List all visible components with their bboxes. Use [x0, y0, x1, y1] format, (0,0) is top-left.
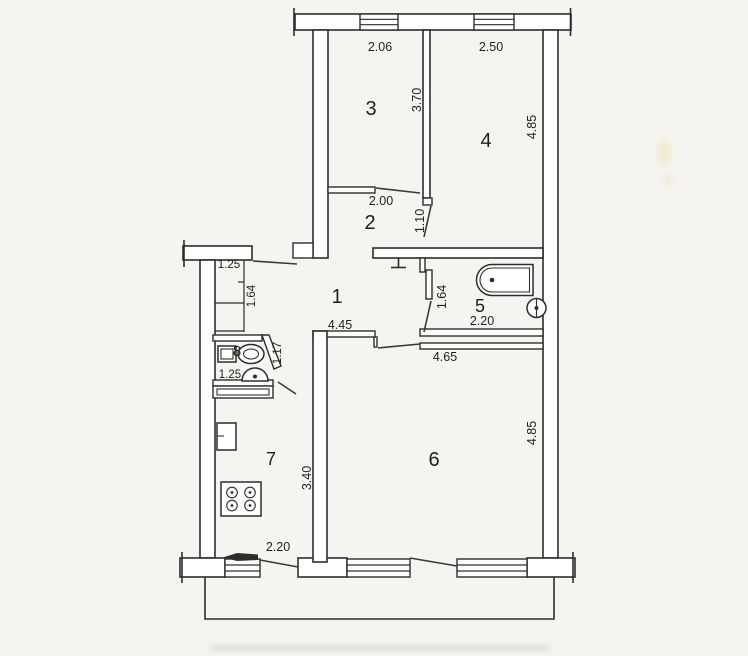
room-6-number: 6: [428, 449, 439, 471]
entry-stub-wall: [183, 246, 252, 260]
outer-wall-right: [543, 30, 558, 558]
floor-plan-scan: 3 2.06 3.70 4 2.50 4.85 2 2.00 1.10 1 4.…: [0, 0, 748, 656]
room-1-number: 1: [331, 286, 342, 308]
entry-width-dim: 1.25: [218, 259, 240, 271]
wc-bowl: [238, 345, 264, 364]
wall-living-top: [420, 343, 543, 349]
bathroom-sink: [527, 299, 546, 318]
window-room4: [474, 14, 514, 30]
room-6-width-dim: 4.65: [433, 350, 457, 364]
bathtub-drain-dot: [490, 278, 495, 283]
room-4-width-dim: 2.50: [479, 40, 503, 54]
entry-depth-dim: 1.64: [246, 284, 258, 307]
room-8-number: 8: [233, 343, 241, 360]
outer-wall-top: [295, 14, 571, 30]
room-3-depth-dim: 3.70: [410, 88, 424, 112]
window-kitchen: [225, 559, 260, 577]
room-8-wall-dim: 1.17: [272, 342, 284, 364]
scan-streak: [210, 645, 550, 651]
wall-hall-top: [373, 248, 543, 258]
room-4-number: 4: [480, 130, 491, 152]
room-7-depth-dim: 3.40: [300, 466, 314, 490]
stove: [221, 482, 261, 516]
scan-artifacts: [210, 139, 672, 651]
floor-plan-drawing: 3 2.06 3.70 4 2.50 4.85 2 2.00 1.10 1 4.…: [0, 0, 748, 656]
wall-room3-room4: [423, 30, 430, 198]
toilet-sink: [242, 368, 268, 381]
labels: 3 2.06 3.70 4 2.50 4.85 2 2.00 1.10 1 4.…: [218, 40, 539, 554]
window-living-left: [347, 559, 410, 577]
room-5-number: 5: [475, 296, 485, 316]
wall-jog: [374, 337, 377, 347]
window-living-right: [457, 559, 527, 577]
outer-wall-left-upper: [313, 30, 328, 258]
wall-jog: [423, 198, 432, 205]
room-2-door-dim: 1.10: [413, 209, 427, 233]
vent-duct: [213, 386, 273, 398]
door-leaf-bathroom: [424, 301, 431, 332]
room-7-number: 7: [266, 449, 276, 469]
room-1-width-dim: 4.45: [328, 318, 352, 332]
wall-pilaster: [293, 243, 313, 258]
room-5-depth-dim: 1.64: [435, 285, 449, 309]
door-leaf-kitchen-balcony: [260, 560, 298, 567]
room-3-number: 3: [365, 98, 376, 120]
door-leaf-room3: [376, 188, 420, 193]
scan-smudge: [664, 173, 672, 187]
door-leaf-living: [378, 344, 420, 348]
wall-room3-hall2: [328, 187, 375, 193]
room-7-balcony-dim: 2.20: [266, 540, 290, 554]
wall-toilet-top: [213, 335, 262, 341]
room-2-width-dim: 2.00: [369, 194, 393, 208]
door-leaf-living-balcony: [410, 558, 457, 566]
wall-kitchen-living: [313, 331, 327, 562]
outer-wall-left-lower: [200, 260, 215, 558]
room-6-depth-dim: 4.85: [525, 421, 539, 445]
room-5-width-dim: 2.20: [470, 314, 494, 328]
window-room3: [360, 14, 398, 30]
door-leaf-kitchen: [278, 382, 296, 394]
balcony-outline: [205, 577, 554, 619]
wall-bathroom-bottom: [420, 329, 543, 336]
wall-bathroom-left: [426, 270, 432, 299]
room-8-width-dim: 1.25: [219, 369, 241, 381]
outer-wall-bottom-seg: [527, 558, 575, 577]
fridge: [217, 423, 236, 450]
room-2-number: 2: [364, 212, 375, 234]
room-3-width-dim: 2.06: [368, 40, 392, 54]
room-4-depth-dim: 4.85: [525, 115, 539, 139]
bathtub: [477, 265, 534, 296]
door-leaf-entry: [253, 261, 297, 264]
wall-bathroom-left: [420, 258, 425, 272]
outer-wall-bottom-seg: [180, 558, 225, 577]
scan-smudge: [657, 139, 671, 167]
